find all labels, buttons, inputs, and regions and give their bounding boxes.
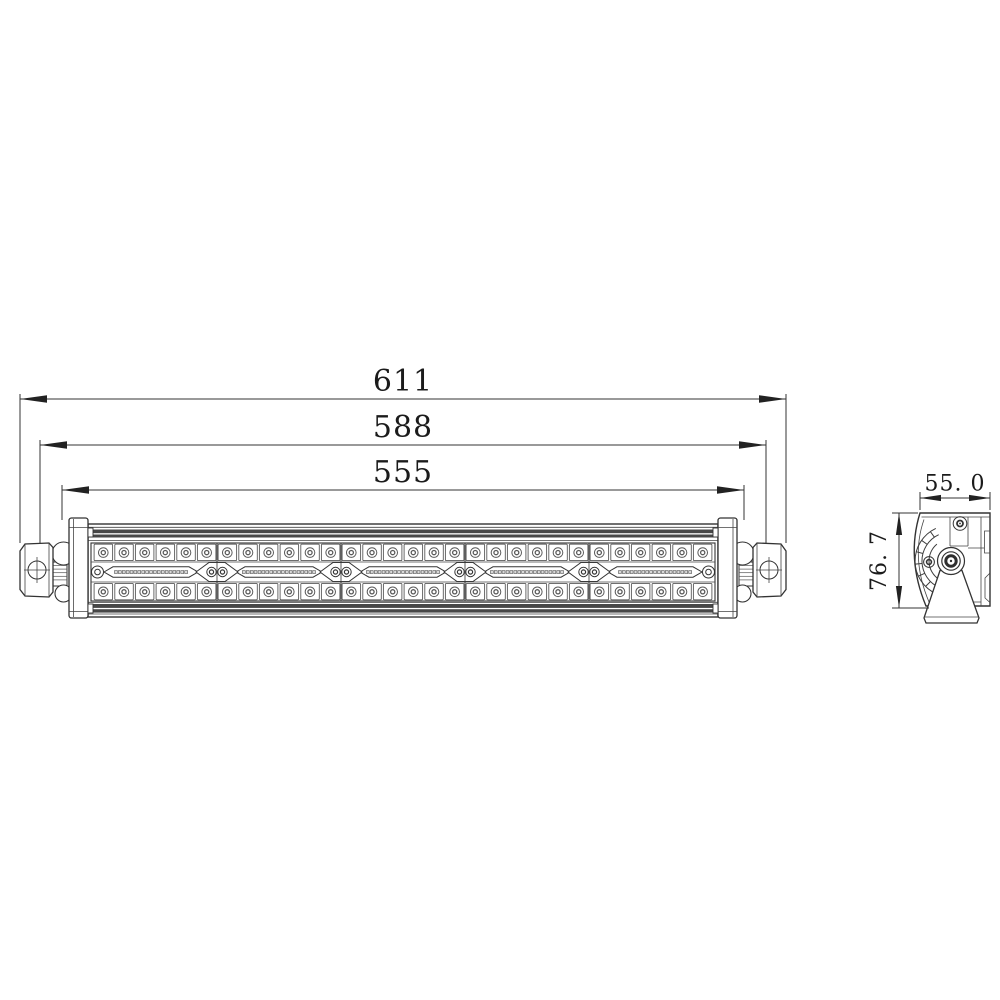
pin xyxy=(646,571,649,574)
led-lens xyxy=(305,587,315,597)
pin xyxy=(685,571,688,574)
pin xyxy=(413,571,416,574)
led-lens xyxy=(326,587,336,597)
pin xyxy=(689,571,692,574)
pin xyxy=(421,571,424,574)
pin xyxy=(242,571,245,574)
led-lens xyxy=(491,548,501,558)
led-lens xyxy=(450,548,460,558)
dimension-555: 555 xyxy=(62,455,744,520)
pin xyxy=(530,571,533,574)
led-lens xyxy=(99,587,109,597)
diamond-screw xyxy=(331,567,340,576)
pin xyxy=(390,571,393,574)
led-lens xyxy=(533,587,543,597)
pin xyxy=(285,571,288,574)
pin xyxy=(115,571,118,574)
led-lens xyxy=(264,587,274,597)
led-lens xyxy=(533,548,543,558)
pin xyxy=(374,571,377,574)
pin xyxy=(549,571,552,574)
led-lens xyxy=(119,587,129,597)
led-lens xyxy=(677,587,687,597)
arrowhead-right xyxy=(717,486,744,494)
led-lens xyxy=(409,587,419,597)
led-lens xyxy=(347,587,357,597)
arrowhead-left xyxy=(62,486,89,494)
pin xyxy=(626,571,629,574)
diamond-screw xyxy=(342,567,351,576)
led-lens xyxy=(471,587,481,597)
led-lens xyxy=(223,548,233,558)
pin xyxy=(673,571,676,574)
cap-tab xyxy=(713,604,718,613)
pin xyxy=(122,571,125,574)
pin xyxy=(553,571,556,574)
arrowhead-right xyxy=(739,441,766,449)
dim-588-label: 588 xyxy=(373,410,433,445)
led-lens xyxy=(367,548,377,558)
pin xyxy=(522,571,525,574)
diamond-screw xyxy=(590,567,599,576)
led-lens xyxy=(553,548,563,558)
pin xyxy=(293,571,296,574)
pin xyxy=(134,571,137,574)
pin xyxy=(490,571,493,574)
pin xyxy=(498,571,501,574)
led-lens xyxy=(615,548,625,558)
pin xyxy=(262,571,265,574)
dim-76-label: 76. 7 xyxy=(867,530,892,591)
arrowhead-left xyxy=(40,441,67,449)
cap-tab xyxy=(713,528,718,537)
led-lens xyxy=(285,548,295,558)
dimension-611: 611 xyxy=(20,364,786,543)
strip-end-screw xyxy=(703,566,715,578)
pin xyxy=(378,571,381,574)
led-lens xyxy=(388,548,398,558)
pin xyxy=(118,571,121,574)
led-lens xyxy=(243,548,253,558)
arrowhead-left xyxy=(20,395,47,403)
side-view: 55. 0 76. 7 xyxy=(867,472,990,624)
pin xyxy=(266,571,269,574)
pin xyxy=(537,571,540,574)
diamond-screw xyxy=(455,567,464,576)
pin xyxy=(510,571,513,574)
led-lens xyxy=(305,548,315,558)
technical-drawing: 611 588 555 xyxy=(0,0,1000,1000)
pin xyxy=(533,571,536,574)
led-lens xyxy=(636,587,646,597)
pin xyxy=(681,571,684,574)
pin xyxy=(297,571,300,574)
dim-555-label: 555 xyxy=(373,455,433,490)
led-lens xyxy=(347,548,357,558)
led-lens xyxy=(264,548,274,558)
pin xyxy=(425,571,428,574)
led-lens xyxy=(119,548,129,558)
right-notch-lower xyxy=(985,573,990,603)
pin xyxy=(181,571,184,574)
pin xyxy=(429,571,432,574)
pin xyxy=(153,571,156,574)
pin xyxy=(185,571,188,574)
dim-55-label: 55. 0 xyxy=(925,472,986,497)
led-lens xyxy=(223,587,233,597)
pin xyxy=(433,571,436,574)
arrowhead-bottom xyxy=(896,586,902,608)
led-lens xyxy=(140,587,150,597)
led-lens xyxy=(471,548,481,558)
pin xyxy=(638,571,641,574)
pin xyxy=(146,571,149,574)
pin xyxy=(254,571,257,574)
pin xyxy=(437,571,440,574)
led-lens xyxy=(574,587,584,597)
led-lens xyxy=(450,587,460,597)
pin xyxy=(402,571,405,574)
foot-outline xyxy=(924,571,979,624)
pin xyxy=(157,571,160,574)
pin xyxy=(169,571,172,574)
led-lens xyxy=(161,548,171,558)
led-lens xyxy=(99,548,109,558)
pin xyxy=(258,571,261,574)
led-lens xyxy=(409,548,419,558)
pin xyxy=(502,571,505,574)
pin xyxy=(382,571,385,574)
strip-end-screw xyxy=(92,566,104,578)
led-lens xyxy=(243,587,253,597)
led-lens xyxy=(615,587,625,597)
pin xyxy=(126,571,129,574)
pivot-bolt xyxy=(938,548,965,575)
pin xyxy=(177,571,180,574)
led-lens xyxy=(636,548,646,558)
cap-tab xyxy=(88,604,93,613)
pin xyxy=(246,571,249,574)
led-lens xyxy=(677,548,687,558)
pin xyxy=(386,571,389,574)
bar-body xyxy=(88,524,718,617)
led-lens xyxy=(429,587,439,597)
front-view: 611 588 555 xyxy=(20,364,786,618)
pin xyxy=(161,571,164,574)
right-notch-upper xyxy=(985,531,991,553)
led-lens xyxy=(202,587,212,597)
pin xyxy=(150,571,153,574)
pin xyxy=(665,571,668,574)
dimension-76: 76. 7 xyxy=(867,513,929,608)
pin xyxy=(514,571,517,574)
led-lens xyxy=(326,548,336,558)
led-lens xyxy=(429,548,439,558)
pin xyxy=(677,571,680,574)
pin xyxy=(165,571,168,574)
dimension-55: 55. 0 xyxy=(920,472,990,511)
led-lens xyxy=(367,587,377,597)
led-lens xyxy=(595,587,605,597)
pin xyxy=(654,571,657,574)
pin xyxy=(557,571,560,574)
pin xyxy=(142,571,145,574)
pin xyxy=(658,571,661,574)
drawing-canvas: 611 588 555 xyxy=(0,0,1000,1000)
pin xyxy=(138,571,141,574)
led-lens xyxy=(202,548,212,558)
diamond-screw xyxy=(579,567,588,576)
pin xyxy=(405,571,408,574)
pin xyxy=(274,571,277,574)
pin xyxy=(130,571,133,574)
pin xyxy=(541,571,544,574)
pin xyxy=(278,571,281,574)
pin xyxy=(270,571,273,574)
pin xyxy=(526,571,529,574)
pin xyxy=(506,571,509,574)
led-lens xyxy=(181,548,191,558)
pin xyxy=(370,571,373,574)
pin xyxy=(309,571,312,574)
mount-foot xyxy=(924,571,979,624)
pin xyxy=(650,571,653,574)
pin xyxy=(313,571,316,574)
pin xyxy=(398,571,401,574)
pin xyxy=(173,571,176,574)
led-lens xyxy=(512,587,522,597)
diamond-screw xyxy=(466,567,475,576)
pin xyxy=(642,571,645,574)
top-screw xyxy=(953,517,967,531)
pin xyxy=(409,571,412,574)
diamond-screw xyxy=(207,567,216,576)
arrowhead-right xyxy=(759,395,786,403)
led-lens xyxy=(285,587,295,597)
led-lens xyxy=(181,587,191,597)
pin xyxy=(622,571,625,574)
pin xyxy=(250,571,253,574)
pin xyxy=(619,571,622,574)
pin xyxy=(394,571,397,574)
led-lens xyxy=(698,587,708,597)
led-lens xyxy=(698,548,708,558)
pin xyxy=(545,571,548,574)
pin xyxy=(305,571,308,574)
led-lens xyxy=(140,548,150,558)
led-lens xyxy=(657,587,667,597)
led-lens xyxy=(388,587,398,597)
right-mount-bracket xyxy=(753,543,786,597)
led-lens xyxy=(657,548,667,558)
pin xyxy=(417,571,420,574)
pin xyxy=(661,571,664,574)
led-lens xyxy=(553,587,563,597)
pin xyxy=(630,571,633,574)
led-lens xyxy=(574,548,584,558)
pin xyxy=(634,571,637,574)
pin xyxy=(366,571,369,574)
led-lens xyxy=(512,548,522,558)
dim-611-label: 611 xyxy=(373,364,433,399)
led-lens xyxy=(161,587,171,597)
pin xyxy=(669,571,672,574)
pin xyxy=(301,571,304,574)
led-lens xyxy=(491,587,501,597)
pin xyxy=(518,571,521,574)
led-lens xyxy=(595,548,605,558)
diamond-screw xyxy=(218,567,227,576)
arrowhead-top xyxy=(896,513,902,535)
left-mount-bracket xyxy=(20,543,53,597)
pin xyxy=(494,571,497,574)
cap-tab xyxy=(88,528,93,537)
pin xyxy=(289,571,292,574)
pin xyxy=(281,571,284,574)
pin xyxy=(561,571,564,574)
